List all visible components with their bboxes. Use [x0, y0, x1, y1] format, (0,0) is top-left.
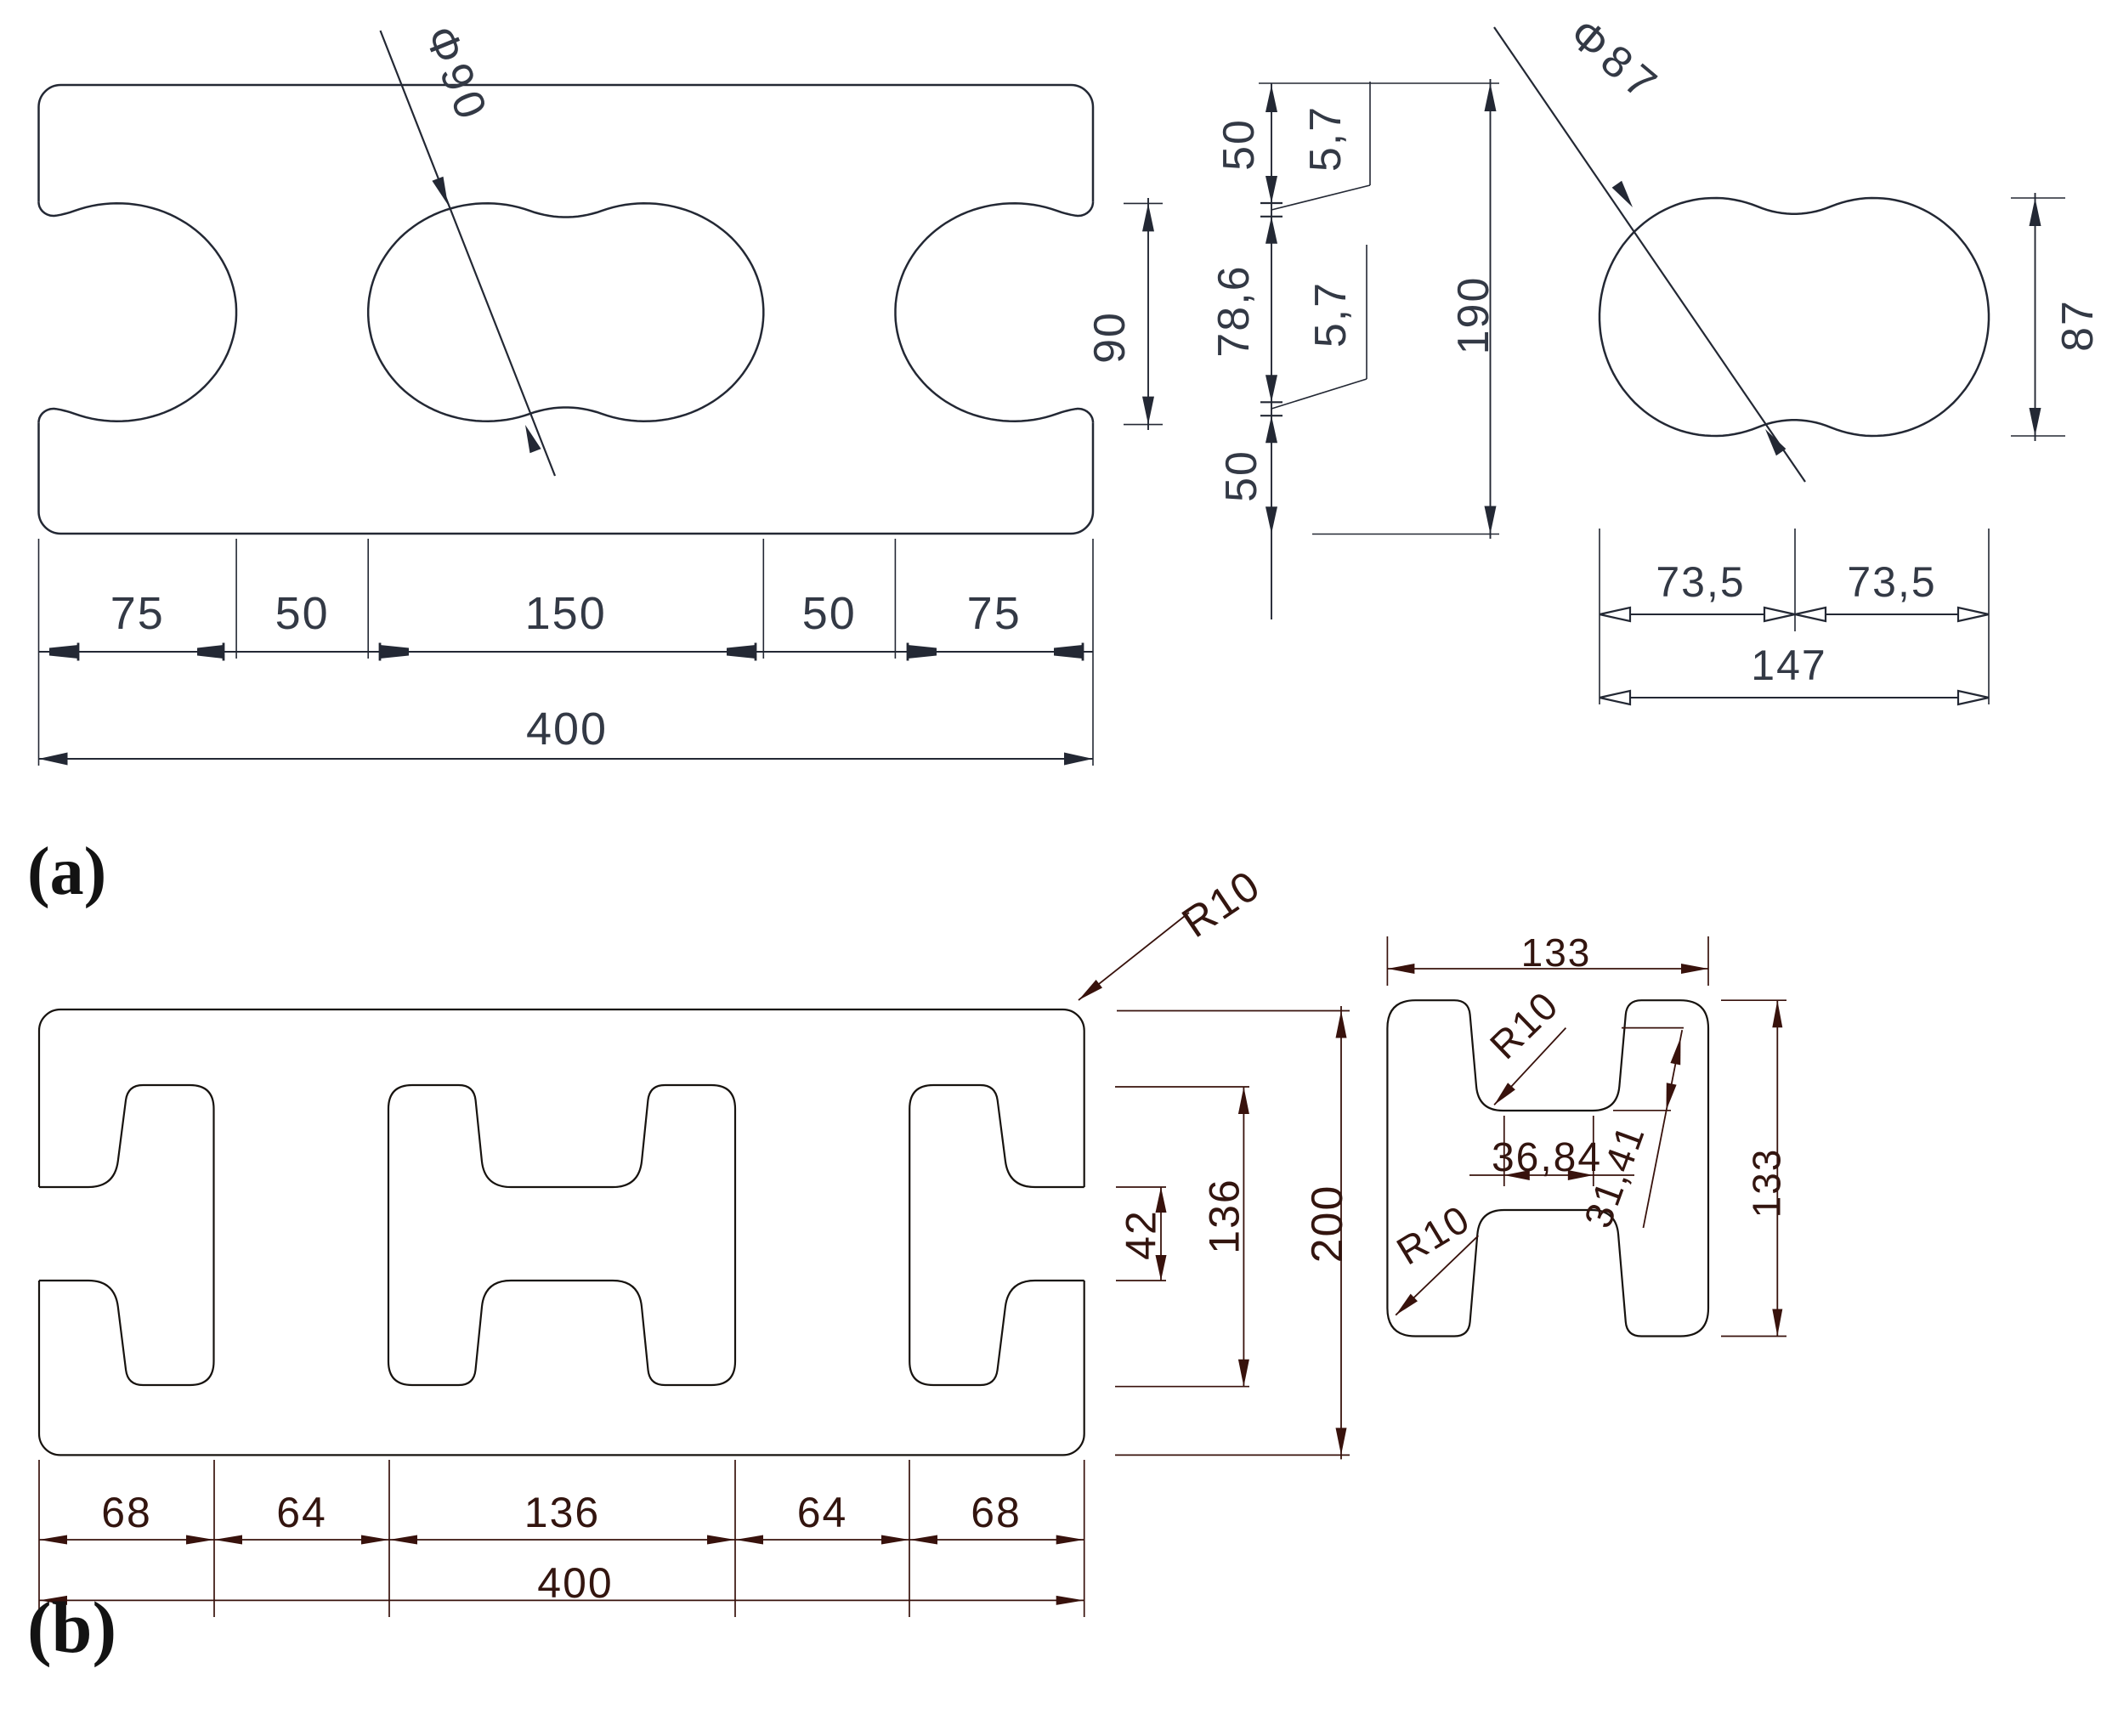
svg-text:50: 50 [802, 588, 857, 639]
svg-text:50: 50 [1215, 118, 1264, 171]
svg-text:50: 50 [1217, 450, 1266, 502]
svg-text:90: 90 [1085, 311, 1135, 364]
svg-text:150: 150 [525, 588, 607, 639]
svg-text:147: 147 [1751, 642, 1826, 689]
svg-text:190: 190 [1449, 276, 1498, 355]
svg-text:400: 400 [526, 704, 608, 755]
svg-text:73,5: 73,5 [1847, 558, 1936, 606]
svg-text:(a): (a) [27, 834, 106, 909]
svg-text:64: 64 [276, 1489, 327, 1536]
svg-text:136: 136 [524, 1489, 600, 1536]
svg-text:50: 50 [275, 588, 330, 639]
svg-text:68: 68 [101, 1489, 152, 1536]
svg-text:87: 87 [2053, 299, 2103, 352]
svg-text:133: 133 [1745, 1148, 1789, 1219]
svg-text:75: 75 [110, 588, 165, 639]
svg-text:73,5: 73,5 [1656, 558, 1745, 606]
svg-text:136: 136 [1201, 1178, 1249, 1253]
svg-text:200: 200 [1303, 1185, 1352, 1264]
svg-text:400: 400 [537, 1559, 613, 1607]
svg-text:42: 42 [1118, 1209, 1165, 1260]
svg-text:64: 64 [797, 1489, 848, 1536]
svg-text:5,7: 5,7 [1301, 105, 1350, 172]
svg-text:(b): (b) [27, 1586, 116, 1668]
svg-text:68: 68 [971, 1489, 1022, 1536]
svg-text:75: 75 [967, 588, 1022, 639]
svg-text:133: 133 [1521, 930, 1592, 975]
svg-text:5,7: 5,7 [1306, 281, 1356, 348]
svg-text:78,6: 78,6 [1209, 264, 1259, 357]
svg-text:36,84: 36,84 [1492, 1135, 1602, 1180]
